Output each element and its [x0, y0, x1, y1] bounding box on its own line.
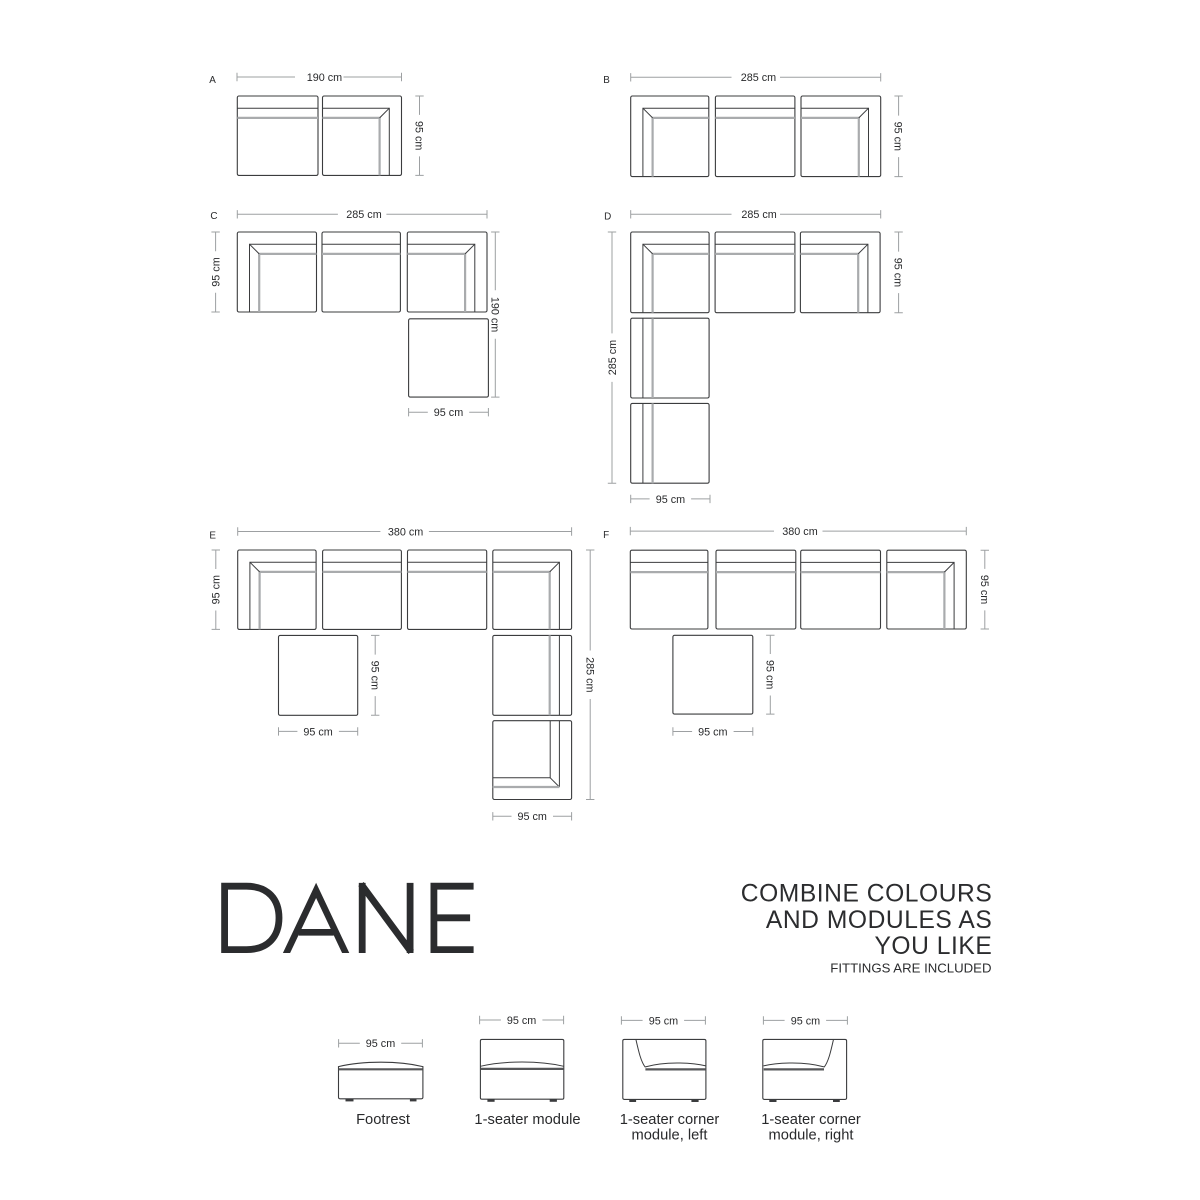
svg-text:95 cm: 95 cm — [649, 1015, 678, 1027]
svg-text:285 cm: 285 cm — [741, 72, 776, 84]
svg-text:95 cm: 95 cm — [656, 494, 685, 506]
svg-text:285 cm: 285 cm — [583, 657, 595, 692]
svg-text:D: D — [604, 212, 611, 223]
svg-text:95 cm: 95 cm — [892, 122, 904, 151]
svg-text:95 cm: 95 cm — [413, 121, 425, 150]
svg-text:95 cm: 95 cm — [517, 811, 546, 823]
svg-text:FITTINGS ARE INCLUDED: FITTINGS ARE INCLUDED — [830, 960, 991, 975]
svg-text:E: E — [209, 531, 216, 542]
svg-text:95 cm: 95 cm — [211, 257, 223, 286]
svg-text:380 cm: 380 cm — [782, 526, 817, 538]
svg-text:190 cm: 190 cm — [307, 72, 342, 84]
svg-text:1-seater module: 1-seater module — [474, 1112, 580, 1128]
svg-text:Footrest: Footrest — [356, 1112, 410, 1128]
svg-text:A: A — [209, 75, 216, 86]
svg-text:95 cm: 95 cm — [211, 575, 223, 604]
svg-text:95 cm: 95 cm — [698, 726, 727, 738]
svg-text:AND MODULES AS: AND MODULES AS — [766, 907, 992, 934]
svg-text:95 cm: 95 cm — [366, 1038, 395, 1050]
svg-text:1-seater corner: 1-seater corner — [620, 1112, 720, 1128]
svg-text:95 cm: 95 cm — [434, 407, 463, 419]
svg-text:285 cm: 285 cm — [607, 340, 619, 375]
svg-text:F: F — [603, 530, 609, 541]
svg-text:95 cm: 95 cm — [303, 726, 332, 738]
svg-text:285 cm: 285 cm — [346, 209, 381, 221]
svg-text:C: C — [210, 211, 217, 222]
svg-text:1-seater corner: 1-seater corner — [761, 1112, 861, 1128]
svg-text:module, right: module, right — [769, 1128, 854, 1144]
svg-text:95 cm: 95 cm — [892, 258, 904, 287]
svg-text:COMBINE COLOURS: COMBINE COLOURS — [741, 881, 993, 908]
svg-text:95 cm: 95 cm — [791, 1015, 820, 1027]
svg-text:95 cm: 95 cm — [507, 1015, 536, 1027]
svg-text:module, left: module, left — [632, 1128, 708, 1144]
svg-text:95 cm: 95 cm — [763, 660, 775, 689]
svg-text:190 cm: 190 cm — [488, 297, 500, 332]
svg-text:YOU LIKE: YOU LIKE — [874, 933, 992, 960]
svg-text:95 cm: 95 cm — [978, 575, 990, 604]
svg-text:380 cm: 380 cm — [388, 526, 423, 538]
svg-text:285 cm: 285 cm — [741, 209, 776, 221]
svg-text:95 cm: 95 cm — [368, 661, 380, 690]
svg-text:B: B — [603, 75, 610, 86]
